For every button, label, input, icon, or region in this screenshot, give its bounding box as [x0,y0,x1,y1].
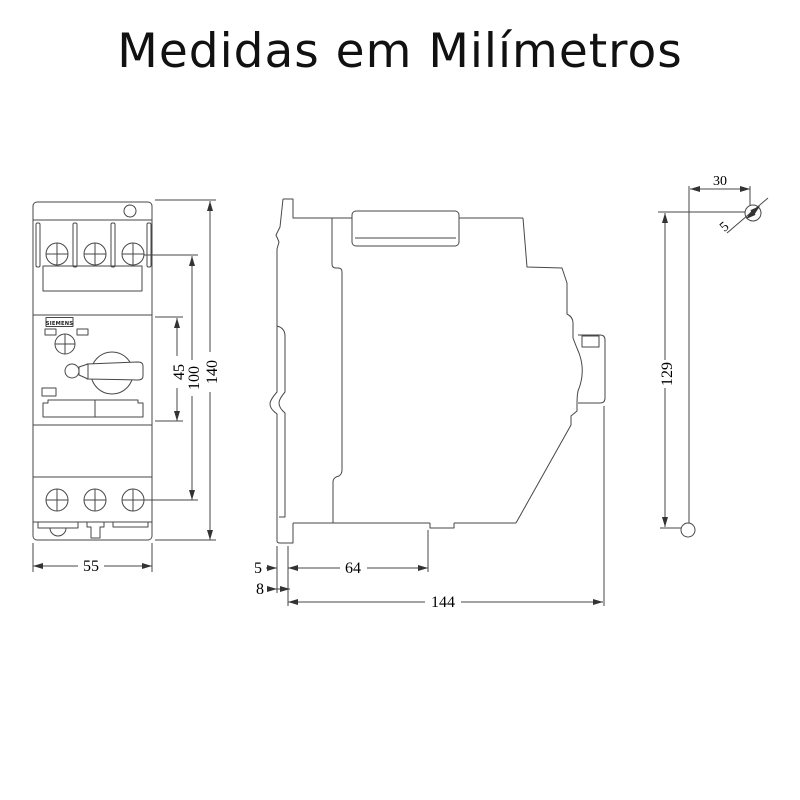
side-left-profile [270,199,293,543]
dim-144-label: 144 [431,594,455,611]
mounting-screw-hole-bottom [681,523,695,537]
terminal-cover-plate [43,266,142,291]
dim-screw-5-label: 5 [717,219,732,235]
mounting-view: 30 5 129 [658,174,768,537]
dim-face-45: 45 [155,317,188,421]
label-plate [43,400,143,417]
dim-width-55: 55 [33,543,152,575]
top-terminal-screws [46,243,144,265]
knob-lever-tip [65,364,79,378]
front-top-hole [124,205,136,217]
dim-30-label: 30 [713,174,727,189]
din-clip-front [38,522,148,538]
knob-lever-neck [79,364,88,379]
front-view: SIEMENS [33,200,221,575]
reset-window [42,388,56,396]
dim-100-label: 100 [186,366,203,390]
din-clip-inner-line [277,326,285,517]
indicator-window-left [45,329,56,335]
side-interior-step [332,218,342,523]
adjustment-dial [55,334,75,354]
brand-text: SIEMENS [46,321,73,327]
indicator-window-right [77,329,88,335]
side-bottom-edge [293,523,516,528]
rotary-knob [65,352,143,394]
dim-horizontal-30: 30 [690,174,750,192]
terminal-cover-strip [352,211,459,246]
knob-lever-bar [87,362,143,380]
dim-140-label: 140 [204,360,221,384]
dim-64-label: 64 [345,560,361,577]
dim-vertical-129: 129 [659,213,676,527]
dim-total-144: 144 [288,406,604,611]
bottom-terminal-screws [46,489,144,511]
terminal-separators [36,223,151,267]
drawing-svg: SIEMENS [0,0,800,800]
dimension-drawing: Medidas em Milímetros [0,0,800,800]
dim-5-label: 5 [254,560,262,577]
dim-8-label: 8 [256,581,264,598]
side-right-profile [516,218,582,523]
side-view: 5 8 64 144 [254,199,605,611]
dim-55-label: 55 [83,558,99,575]
dim-129-label: 129 [659,362,676,386]
dim-clip-8: 8 [256,581,290,598]
dim-base-64: 64 [288,530,428,577]
